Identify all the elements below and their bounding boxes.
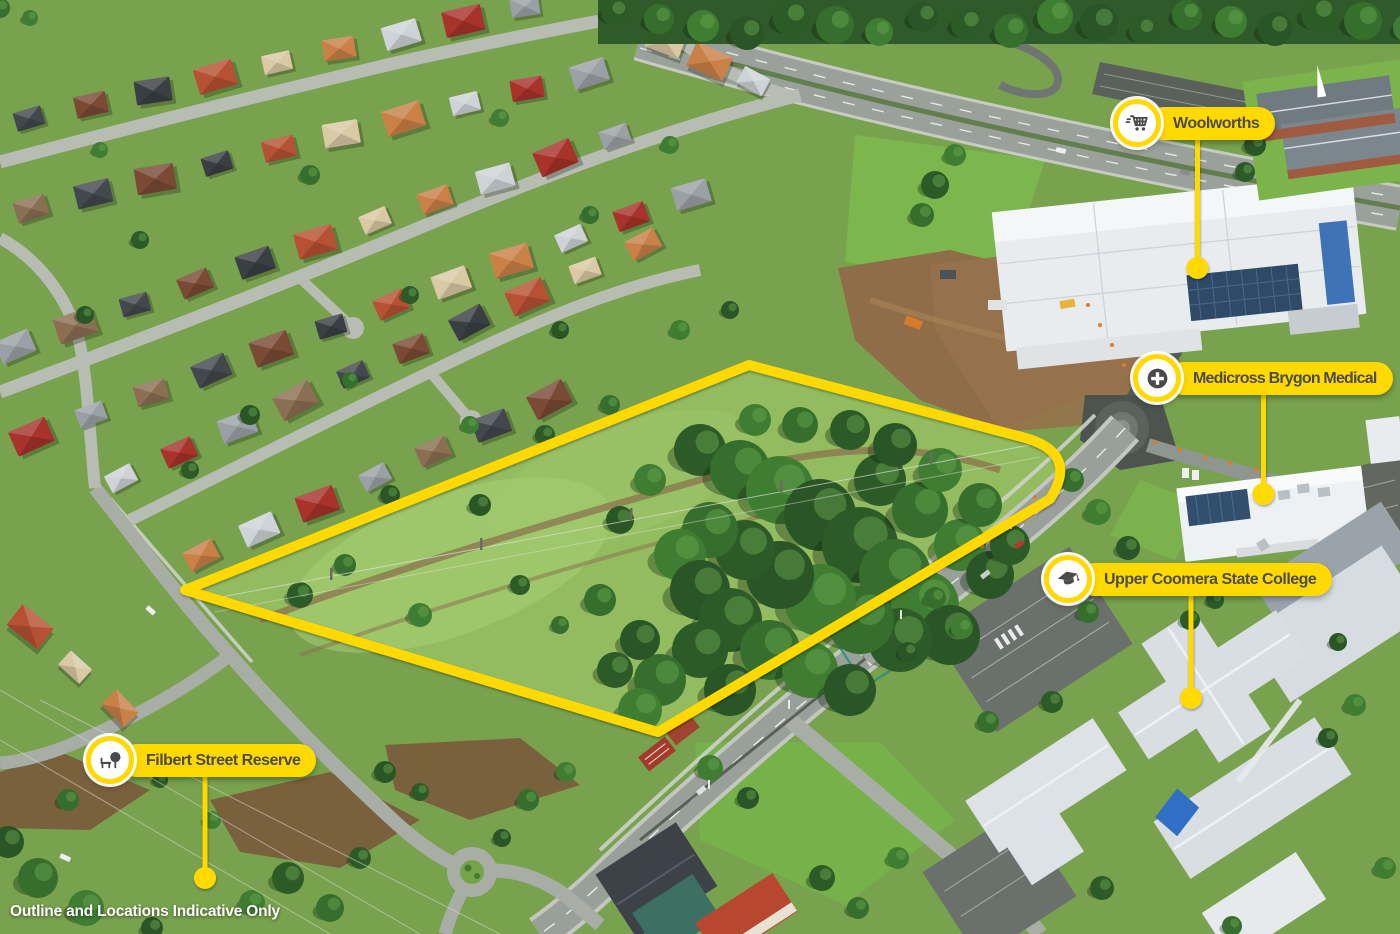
callout-medicross-brygon-medical: Medicross Brygon Medical [1133,354,1393,402]
callout-woolworths: Woolworths [1113,99,1275,147]
callout-label-woolworths: Woolworths [1147,107,1275,140]
graduation-cap-icon [1044,555,1092,603]
park-bench-tree-icon [86,736,134,784]
medical-cross-icon [1133,354,1181,402]
callout-label-reserve: Filbert Street Reserve [120,744,316,777]
callout-label-medicross: Medicross Brygon Medical [1167,362,1393,395]
aerial-photo: Woolworths Medicross Brygon Medical Uppe… [0,0,1400,934]
disclaimer-text: Outline and Locations Indicative Only [10,903,280,921]
callout-upper-coomera-state-college: Upper Coomera State College [1044,555,1332,603]
shopping-cart-icon [1113,99,1161,147]
callout-filbert-street-reserve: Filbert Street Reserve [86,736,316,784]
callout-label-college: Upper Coomera State College [1078,563,1332,596]
